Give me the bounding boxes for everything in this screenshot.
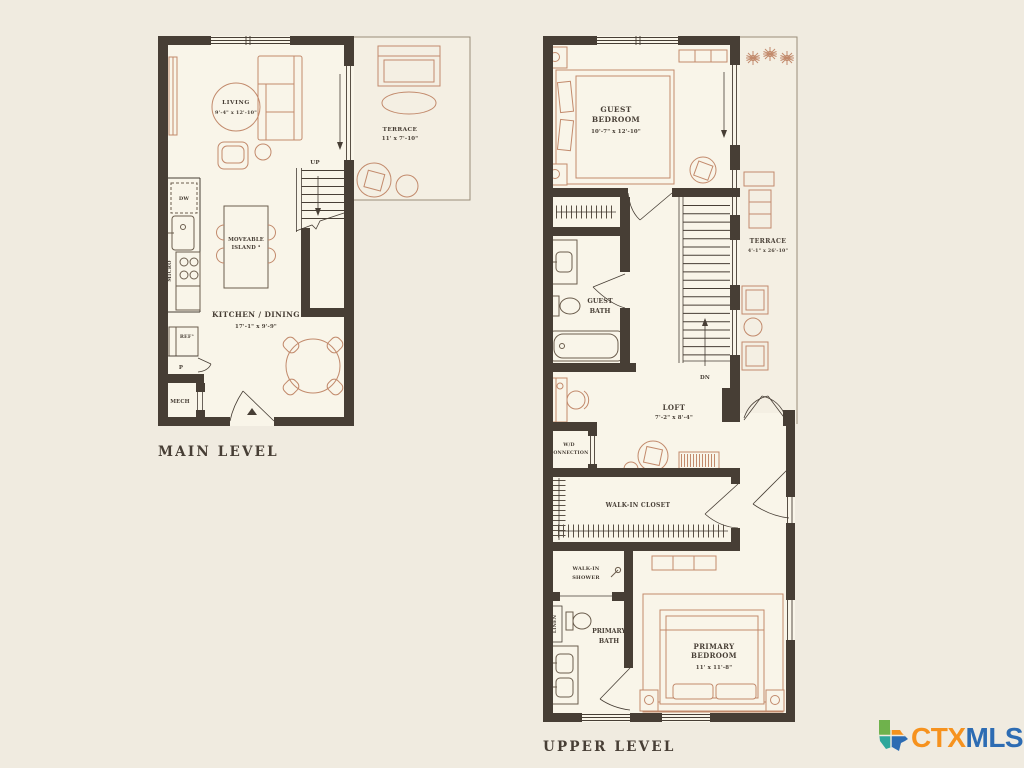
shower-label-2: SHOWER (572, 575, 600, 581)
dishwasher-label: DW (179, 196, 190, 202)
primary-bed (656, 610, 768, 711)
upper-terrace: TERRACE 4'-1" x 26'-10" (740, 37, 797, 424)
primary-bath-label-2: BATH (599, 638, 619, 645)
kitchen-dining-dim: 17'-1" x 9'-9" (235, 324, 277, 330)
upper-terrace-label: TERRACE (750, 238, 787, 245)
texas-icon (874, 720, 908, 751)
pantry-label: P (179, 365, 183, 371)
logo-text: CTXMLS (911, 722, 1023, 753)
up-label: UP (310, 160, 320, 166)
guest-bath-label-1: GUEST (587, 297, 613, 305)
primary-dresser (652, 556, 716, 570)
living-sofa (258, 56, 302, 140)
guest-bedroom-dim: 10'-7" x 12'-10" (591, 129, 641, 135)
mech-label: MECH (170, 399, 190, 405)
main-level-title: MAIN LEVEL (158, 444, 279, 460)
floor-plan-page: TERRACE 11' x 7'-10" LIVING 9'-4" x 12'-… (0, 0, 1024, 768)
loft-dim: 7'-2" x 8'-4" (655, 415, 693, 421)
upper-level-title: UPPER LEVEL (543, 739, 676, 755)
guest-bedroom-label-1: GUEST (600, 105, 631, 114)
dn-label: DN (700, 375, 710, 381)
walkin-closet-label: WALK-IN CLOSET (605, 502, 671, 509)
guest-bedroom-label-2: BEDROOM (592, 115, 640, 124)
guest-bath-label-2: BATH (590, 307, 611, 315)
living-window (211, 36, 290, 45)
primary-nightstand-left (640, 690, 658, 711)
shower-label-1: WALK-IN (571, 566, 599, 572)
primary-bath-label-1: PRIMARY (592, 628, 626, 635)
main-terrace: TERRACE 11' x 7'-10" (354, 37, 470, 200)
kitchen-dining-label: KITCHEN / DINING (212, 310, 300, 319)
primary-bedroom-label-2: BEDROOM (691, 651, 737, 660)
guest-bedroom-window (597, 36, 678, 45)
island-label-2: ISLAND ⁴ (232, 245, 261, 251)
main-level-plan: TERRACE 11' x 7'-10" LIVING 9'-4" x 12'-… (158, 36, 470, 460)
ctxmls-logo: CTXMLS (874, 720, 1023, 753)
loft-label: LOFT (663, 403, 686, 412)
logo-mls: MLS (966, 722, 1024, 753)
floor-plan-image: TERRACE 11' x 7'-10" LIVING 9'-4" x 12'-… (0, 0, 1024, 768)
upper-terrace-dim: 4'-1" x 26'-10" (748, 248, 788, 254)
primary-bedroom-dim: 11' x 11'-8" (696, 665, 732, 671)
refrigerator-label: REF° (180, 334, 194, 340)
plant-icon (763, 47, 777, 61)
primary-bedroom-label-1: PRIMARY (694, 642, 736, 651)
plant-icon (746, 51, 760, 65)
main-terrace-label: TERRACE (383, 127, 418, 133)
plant-icon (780, 51, 794, 65)
main-terrace-dim: 11' x 7'-10" (382, 136, 418, 142)
primary-nightstand-right (766, 690, 784, 711)
logo-ctx: CTX (911, 722, 966, 753)
upper-level-plan: TERRACE 4'-1" x 26'-10" (543, 36, 797, 755)
living-label: LIVING (222, 100, 250, 106)
wd-label-1: W/D (562, 442, 574, 448)
guest-bed (556, 70, 674, 184)
island-label-1: MOVEABLE (228, 237, 264, 243)
wd-label-2: CONNECTION (550, 450, 590, 456)
living-dim: 9'-4" x 12'-10" (215, 110, 257, 116)
